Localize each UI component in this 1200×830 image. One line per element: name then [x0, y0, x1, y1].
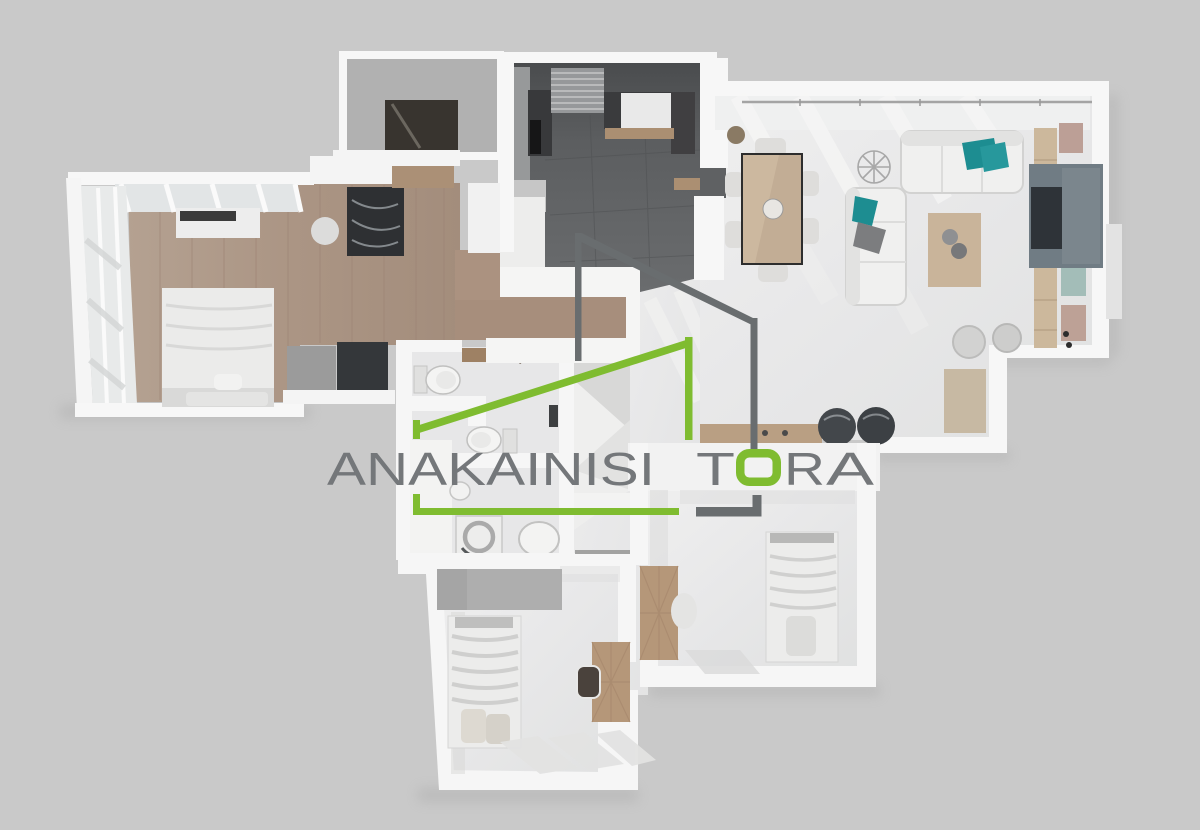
svg-text:ANAKAINISI: ANAKAINISI	[327, 443, 655, 495]
svg-text:T: T	[696, 443, 735, 495]
svg-text:R: R	[784, 443, 825, 495]
svg-text:A: A	[826, 443, 874, 495]
